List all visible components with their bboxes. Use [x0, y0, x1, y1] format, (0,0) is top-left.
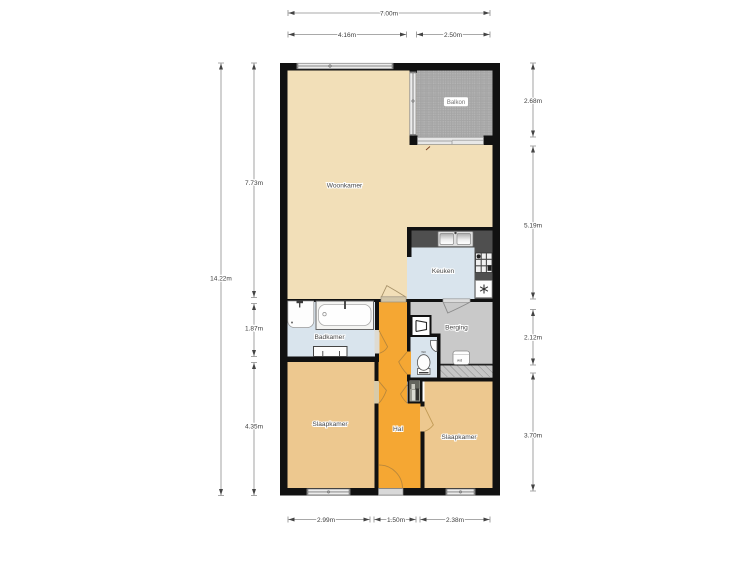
svg-text:2.38m: 2.38m: [446, 517, 464, 524]
svg-text:Hal: Hal: [393, 426, 403, 433]
svg-text:4.16m: 4.16m: [338, 32, 356, 39]
svg-text:wc: wc: [421, 350, 426, 354]
svg-text:wd: wd: [457, 358, 462, 363]
svg-text:5.19m: 5.19m: [524, 223, 542, 230]
svg-text:Slaapkamer: Slaapkamer: [441, 434, 477, 441]
svg-text:7.73m: 7.73m: [245, 180, 263, 187]
svg-text:1.87m: 1.87m: [245, 326, 263, 333]
svg-text:Slaapkamer: Slaapkamer: [312, 421, 348, 428]
svg-text:Keuken: Keuken: [432, 268, 455, 275]
svg-text:1.50m: 1.50m: [387, 517, 405, 524]
svg-text:2.68m: 2.68m: [524, 98, 542, 105]
svg-text:2.50m: 2.50m: [444, 32, 462, 39]
svg-text:2.99m: 2.99m: [317, 517, 335, 524]
svg-text:2.12m: 2.12m: [524, 335, 542, 342]
svg-text:Badkamer: Badkamer: [314, 334, 345, 341]
svg-text:14.22m: 14.22m: [210, 276, 232, 283]
svg-text:Woonkamer: Woonkamer: [327, 183, 363, 190]
svg-text:7.00m: 7.00m: [380, 11, 398, 18]
svg-text:Balkon: Balkon: [447, 100, 465, 106]
svg-text:Berging: Berging: [445, 325, 468, 332]
svg-text:3.70m: 3.70m: [524, 433, 542, 440]
svg-text:4.35m: 4.35m: [245, 424, 263, 431]
